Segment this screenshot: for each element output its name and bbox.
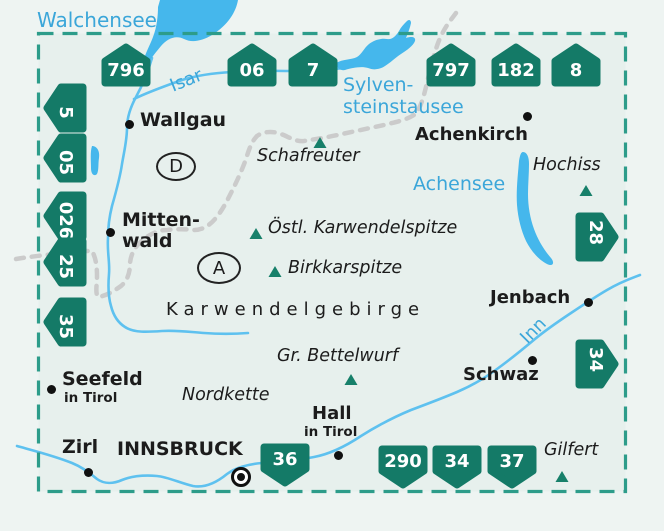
range-label-karwendelgebirge: Karwendelgebirge <box>166 301 425 320</box>
town-label-seefeld-2: in Tirol <box>64 391 117 405</box>
lake-label-walchensee: Walchensee <box>37 10 157 31</box>
town-dot <box>84 468 93 477</box>
map-sheet-badge[interactable]: 37 <box>485 442 539 490</box>
map-sheet-badge[interactable]: 35 <box>42 295 90 349</box>
badge-number: 026 <box>39 192 93 240</box>
map-sheet-badge[interactable]: 36 <box>258 440 312 488</box>
country-code: D <box>169 156 183 177</box>
town-label-mittenwald-1: Mitten- <box>122 211 200 231</box>
peak-label-gr-bettelwurf: Gr. Bettelwurf <box>277 347 398 365</box>
lake-label-achensee: Achensee <box>413 175 505 195</box>
badge-number: 290 <box>376 442 430 490</box>
map-sheet-badge[interactable]: 5 <box>42 81 90 135</box>
map-sheet-badge[interactable]: 06 <box>225 42 279 90</box>
town-label-seefeld-1: Seefeld <box>62 370 143 390</box>
badge-number: 37 <box>485 442 539 490</box>
lake-label-sylvenstein-2: steinstausee <box>343 98 464 118</box>
town-dot <box>523 112 532 121</box>
peak-label-gilfert: Gilfert <box>544 441 598 459</box>
badge-number: 797 <box>424 42 478 90</box>
city-marker-innsbruck <box>231 467 251 487</box>
peak-label-birkkarspitze: Birkkarspitze <box>288 259 402 277</box>
badge-number: 7 <box>286 42 340 90</box>
badge-number: 34 <box>569 340 623 388</box>
map-sheet-badge[interactable]: 796 <box>99 42 153 90</box>
peak-label-schafreuter: Schafreuter <box>257 147 360 165</box>
badge-number: 5 <box>39 84 93 132</box>
overview-map: 796 06 7 797 182 8 5 05 026 25 35 <box>0 0 664 531</box>
country-marker-germany: D <box>156 152 196 181</box>
country-code: A <box>213 258 225 279</box>
town-label-zirl: Zirl <box>62 438 98 458</box>
town-label-achenkirch: Achenkirch <box>415 126 528 145</box>
town-label-jenbach: Jenbach <box>490 289 570 308</box>
badge-number: 182 <box>489 42 543 90</box>
map-sheet-badge[interactable]: 797 <box>424 42 478 90</box>
badge-number: 06 <box>225 42 279 90</box>
town-dot <box>125 120 134 129</box>
map-sheet-badge[interactable]: 8 <box>549 42 603 90</box>
town-dot <box>47 385 56 394</box>
badge-number: 8 <box>549 42 603 90</box>
badge-number: 36 <box>258 440 312 488</box>
town-label-mittenwald-2: wald <box>122 232 173 252</box>
badge-number: 796 <box>99 42 153 90</box>
peak-label-oestl-karwendelspitze: Östl. Karwendelspitze <box>268 219 457 237</box>
badge-number: 34 <box>430 442 484 490</box>
map-sheet-badge[interactable]: 05 <box>42 131 90 185</box>
map-sheet-badge[interactable]: 34 <box>430 442 484 490</box>
map-sheet-badge[interactable]: 182 <box>489 42 543 90</box>
lake-label-sylvenstein-1: Sylven- <box>343 76 413 96</box>
map-sheet-badge[interactable]: 25 <box>42 235 90 289</box>
badge-number: 35 <box>39 298 93 346</box>
badge-number: 28 <box>569 213 623 261</box>
town-dot <box>106 228 115 237</box>
map-sheet-badge[interactable]: 7 <box>286 42 340 90</box>
town-dot <box>584 298 593 307</box>
town-label-schwaz: Schwaz <box>463 366 539 385</box>
town-label-hall-1: Hall <box>312 405 352 424</box>
town-dot <box>334 451 343 460</box>
town-label-innsbruck: INNSBRUCK <box>117 440 243 460</box>
peak-label-hochiss: Hochiss <box>533 156 601 174</box>
map-sheet-badge[interactable]: 290 <box>376 442 430 490</box>
badge-number: 05 <box>39 134 93 182</box>
badge-number: 25 <box>39 238 93 286</box>
town-label-wallgau: Wallgau <box>140 111 226 131</box>
country-marker-austria: A <box>197 252 241 284</box>
town-label-hall-2: in Tirol <box>304 425 357 439</box>
map-sheet-badge[interactable]: 34 <box>572 337 620 391</box>
range-label-nordkette: Nordkette <box>182 386 270 404</box>
map-sheet-badge[interactable]: 28 <box>572 210 620 264</box>
